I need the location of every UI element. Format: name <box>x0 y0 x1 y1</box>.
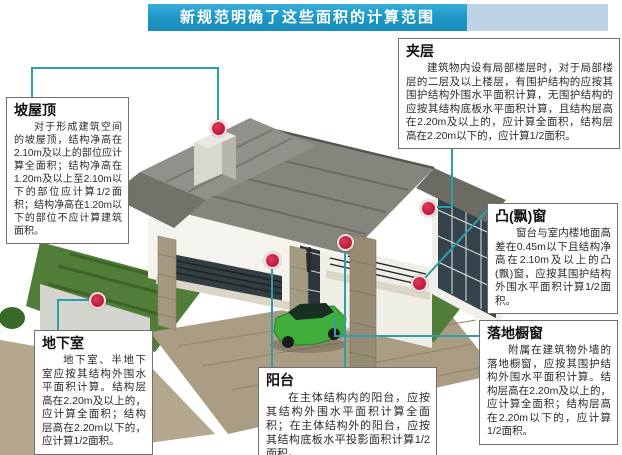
marker-dot-bay-window <box>411 275 428 292</box>
callout-balcony-body: 在主体结构内的阳台，应按其结构外围水平面积计算全面积；在主体结构外的阳台，应按其… <box>266 391 430 455</box>
callout-mezzanine: 夹层 建筑物内设有局部楼层时，对于局部楼层的二层及以上楼层，有围护结构的应按其围… <box>398 38 620 149</box>
marker-dot-sloped-roof <box>210 120 227 137</box>
title-banner-tail <box>467 4 608 31</box>
callout-sloped-roof-title: 坡屋顶 <box>14 102 122 119</box>
callout-bay-window: 凸(飘)窗 窗台与室内楼地面高差在0.45m以下且结构净高在2.10m及以上的凸… <box>487 203 618 314</box>
stone-pillar-right <box>350 234 376 388</box>
marker-dot-mezzanine <box>420 200 437 217</box>
callout-balcony-title: 阳台 <box>266 372 430 389</box>
callout-display-window-body: 附属在建筑物外墙的落地橱窗，应按其围护结构外围水平面积计算。结构层高在2.20m… <box>487 344 611 439</box>
callout-sloped-roof: 坡屋顶 对于形成建筑空间的坡屋顶，结构净高在2.10m及以上的部位应计算全面积；… <box>6 97 129 244</box>
callout-sloped-roof-body: 对于形成建筑空间的坡屋顶，结构净高在2.10m及以上的部位应计算全面积；结构净高… <box>14 121 122 238</box>
car-wheel-front <box>328 328 340 340</box>
marker-dot-balcony-left <box>264 252 281 269</box>
car-wheel-rear <box>282 336 294 348</box>
callout-basement: 地下室 地下室、半地下室应按其结构外围水平面积计算。结构层高在2.20m及以上的… <box>34 330 153 455</box>
callout-balcony: 阳台 在主体结构内的阳台，应按其结构外围水平面积计算全面积；在主体结构外的阳台，… <box>258 367 437 455</box>
title-banner: 新规范明确了这些面积的计算范围 <box>148 4 467 31</box>
callout-mezzanine-body: 建筑物内设有局部楼层时，对于局部楼层的二层及以上楼层，有围护结构的应按其围护结构… <box>406 62 613 143</box>
marker-dot-basement <box>89 292 106 309</box>
marker-dot-balcony-right <box>337 234 354 251</box>
callout-display-window-title: 落地橱窗 <box>487 325 611 342</box>
bush <box>0 307 25 329</box>
infographic-canvas: 新规范明确了这些面积的计算范围 坡屋顶 对于形成建筑空间的坡屋顶，结构净高在2.… <box>0 0 622 455</box>
callout-bay-window-title: 凸(飘)窗 <box>495 208 611 225</box>
callout-mezzanine-title: 夹层 <box>406 43 613 60</box>
person-figure <box>306 247 312 253</box>
callout-bay-window-body: 窗台与室内楼地面高差在0.45m以下且结构净高在2.10m及以上的凸(飘)窗，应… <box>495 227 611 308</box>
callout-display-window: 落地橱窗 附属在建筑物外墙的落地橱窗，应按其围护结构外围水平面积计算。结构层高在… <box>479 320 618 445</box>
callout-basement-body: 地下室、半地下室应按其结构外围水平面积计算。结构层高在2.20m及以上的，应计算… <box>42 354 146 449</box>
callout-basement-title: 地下室 <box>42 335 146 352</box>
